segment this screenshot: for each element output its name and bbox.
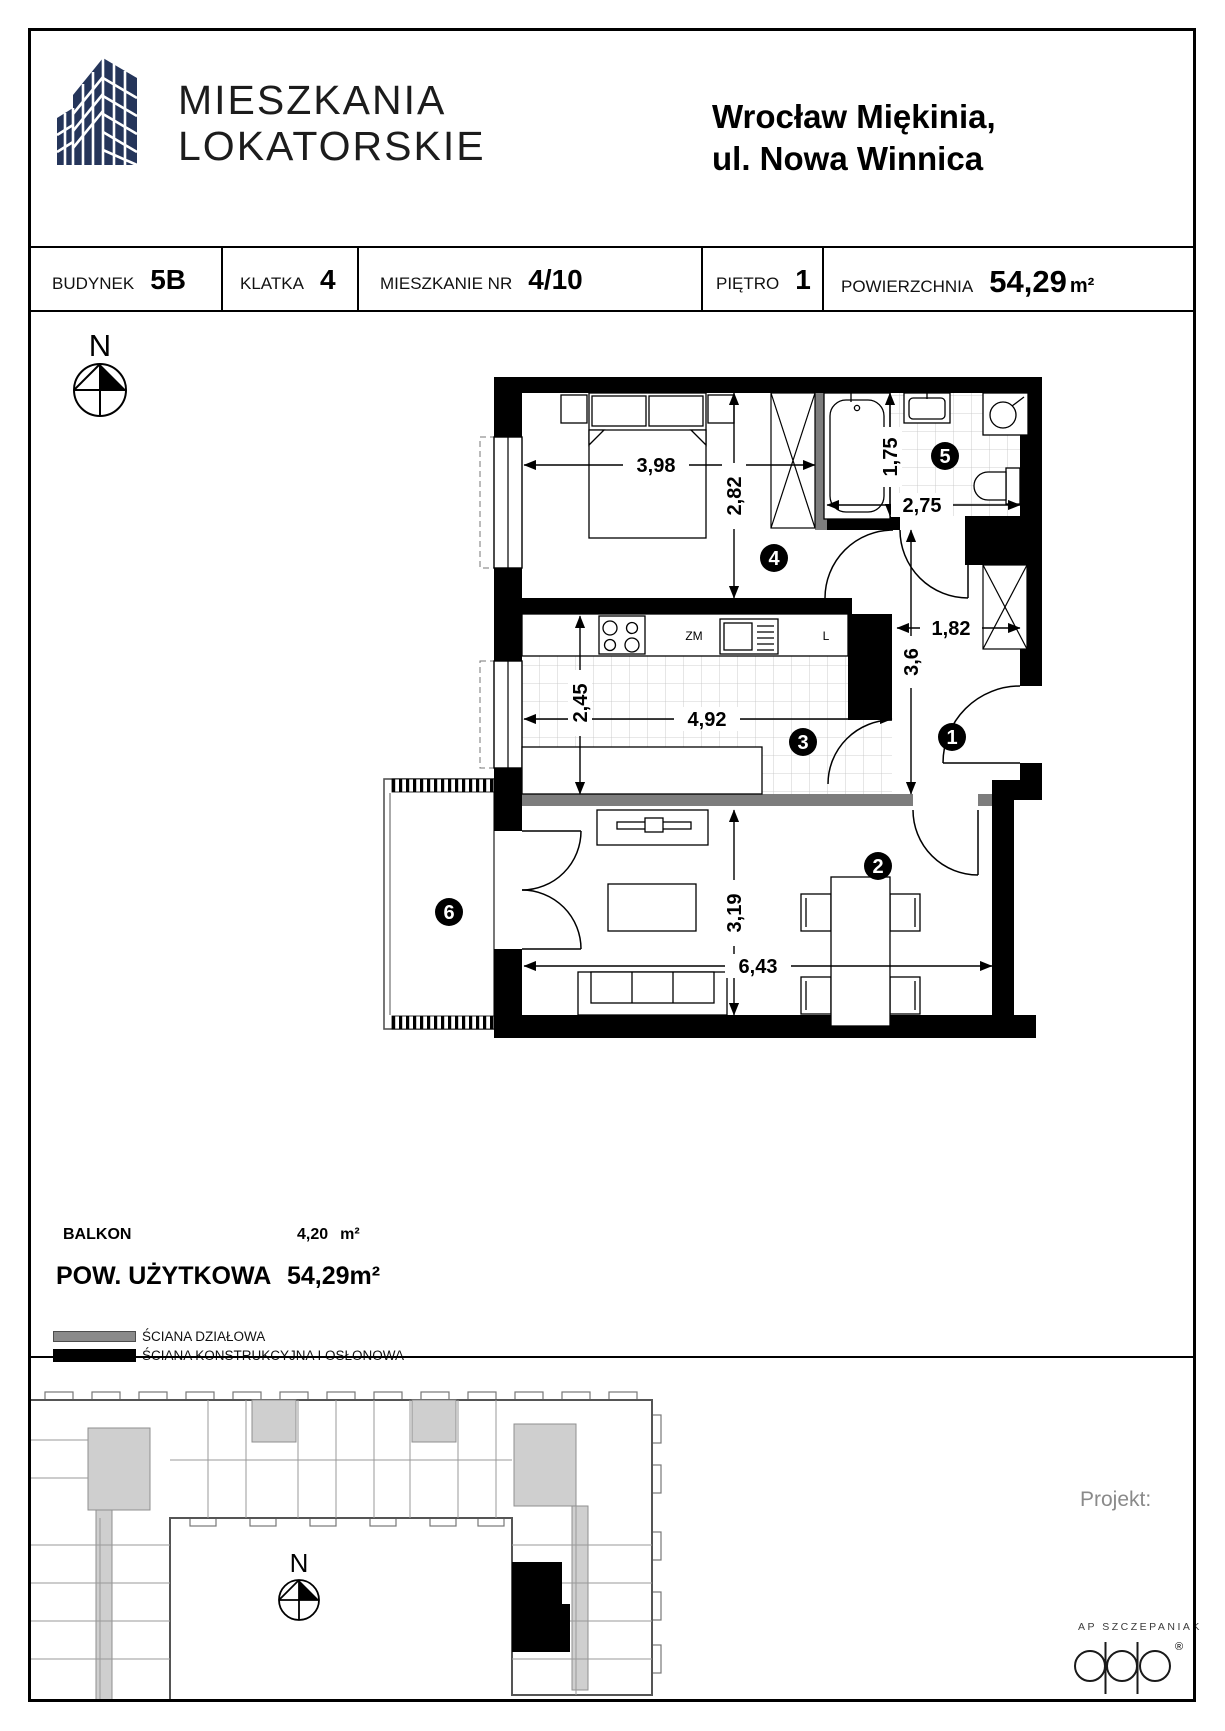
staircase-label: KLATKA [240,274,304,294]
dim-hall-height: 3,6 [901,648,923,676]
floor-value: 1 [795,264,811,296]
siteplan-compass: N [279,1548,319,1620]
building-value: 5B [150,264,186,296]
highlighted-apartment [512,1562,570,1652]
balcony-french-door [522,831,581,949]
svg-text:4: 4 [768,548,780,570]
balcony-area-value: 4,20m² [297,1226,360,1244]
registered-trademark: ® [1175,1641,1183,1653]
usable-area-value: 54,29m² [287,1262,380,1291]
room-badge-bedroom: 4 [760,544,788,572]
info-cell-apartment-no: MIESZKANIE NR 4/10 [358,248,702,310]
toilet [974,468,1020,504]
svg-text:6: 6 [443,902,454,924]
kitchen-window [480,661,522,768]
nightstand-left [561,395,587,423]
info-cell-area: POWIERZCHNIA 54,29 m² [823,248,1196,310]
building-site-plan: N [28,1358,1196,1702]
bathroom-door [900,530,968,598]
nightstand-right [708,395,734,423]
svg-text:1: 1 [946,727,957,749]
brand-line-2: LOKATORSKIE [178,124,486,170]
info-divider-2 [357,248,359,310]
room-badge-living: 2 [864,852,892,880]
washing-machine [983,393,1028,435]
dim-hall-width: 1,82 [932,618,971,640]
north-compass: N [74,328,126,416]
dishwasher-label: ZM [685,629,702,643]
bedroom-wardrobe [771,393,815,528]
brand-line-1: MIESZKANIA [178,78,486,124]
dim-bath-width: 2,75 [903,495,942,517]
compass-north-label: N [89,328,111,363]
info-divider-1 [221,248,223,310]
area-bar-unit: m² [1070,275,1094,298]
dim-bedroom-height: 2,82 [724,477,746,516]
bedroom-door [825,530,893,598]
area-bar-value: 54,29 [989,264,1067,300]
title-line-1: Wrocław Miękinia, [712,96,996,138]
svg-text:5: 5 [939,446,950,468]
architecture-studio-name: AP SZCZEPANIAK [1078,1621,1202,1633]
balcony-railing-bottom [392,1016,494,1029]
coffee-table [608,884,696,931]
brand-building-icon [55,40,165,170]
title-line-2: ul. Nowa Winnica [712,138,996,180]
hall-wardrobe [983,565,1027,649]
dining-table [831,877,890,1026]
room-badge-balcony: 6 [435,898,463,926]
floor-label: PIĘTRO [716,274,779,294]
dim-kitchen-height: 2,45 [570,684,592,723]
apartment-info-bar: BUDYNEK 5B KLATKA 4 MIESZKANIE NR 4/10 P… [28,248,1196,310]
legend-partition-wall-label: ŚCIANA DZIAŁOWA [142,1329,265,1344]
dim-bath-height: 1,75 [880,438,902,477]
info-cell-staircase: KLATKA 4 [222,248,358,310]
room-badge-kitchen: 3 [789,728,817,756]
kitchen-sink [720,619,778,654]
usable-area-label: POW. UŻYTKOWA [56,1262,271,1291]
legend-partition-wall-swatch [53,1331,136,1342]
svg-text:2: 2 [872,856,883,878]
staircase-value: 4 [320,264,336,296]
tv-stand [597,810,708,845]
dim-kitchen-width: 4,92 [688,709,727,731]
info-divider-4 [822,248,824,310]
washbasin [904,393,950,423]
balcony-area-unit: m² [340,1226,360,1243]
apartment-no-value: 4/10 [528,264,583,296]
info-cell-floor: PIĘTRO 1 [702,248,823,310]
balcony-railing-top [392,779,494,792]
development-title: Wrocław Miękinia, ul. Nowa Winnica [712,96,996,180]
siteplan-compass-north-label: N [290,1548,309,1578]
living-room-door [913,810,978,875]
architecture-studio-logo: ® [1062,1636,1192,1698]
kitchen-island [522,747,762,794]
dining-set [801,877,920,1026]
room-badge-bathroom: 5 [931,442,959,470]
balcony-area-label: BALKON [63,1226,131,1244]
project-label: Projekt: [1080,1488,1151,1512]
fridge-label: L [823,629,830,643]
brand-wordmark: MIESZKANIA LOKATORSKIE [178,78,486,170]
dim-bedroom-width: 3,98 [637,455,676,477]
room-badge-hall: 1 [938,723,966,751]
apartment-floor-plan: N [28,312,1196,1358]
svg-text:3: 3 [797,732,808,754]
building-label: BUDYNEK [52,274,134,294]
info-divider-3 [701,248,703,310]
sofa [578,972,727,1015]
info-cell-building: BUDYNEK 5B [28,248,222,310]
dim-living-width: 6,43 [739,956,778,978]
apartment-no-label: MIESZKANIE NR [380,274,512,294]
area-bar-label: POWIERZCHNIA [841,277,973,297]
dim-living-height: 3,19 [724,894,746,933]
floorplan-card-page: MIESZKANIA LOKATORSKIE Wrocław Miękinia,… [0,0,1225,1731]
bedroom-window [480,437,522,568]
